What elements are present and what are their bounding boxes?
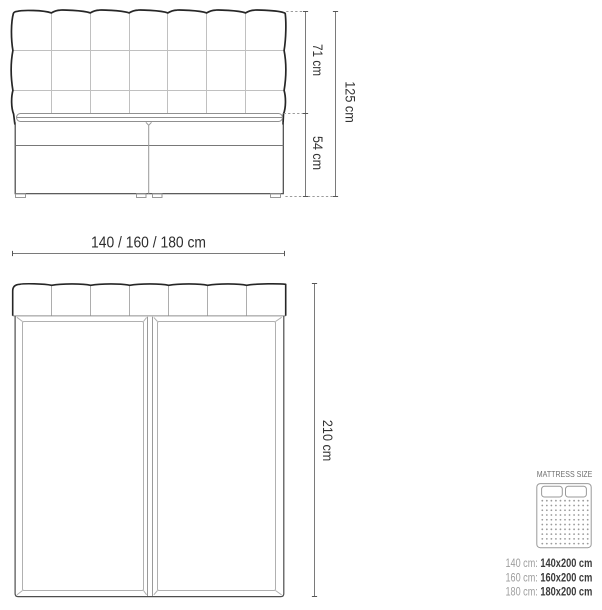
svg-text:71 cm: 71 cm bbox=[310, 44, 326, 76]
svg-text:180x200 cm: 180x200 cm bbox=[540, 587, 592, 599]
svg-text:140 cm:: 140 cm: bbox=[506, 558, 538, 570]
svg-text:140 / 160 / 180 cm: 140 / 160 / 180 cm bbox=[91, 234, 206, 251]
svg-text:210 cm: 210 cm bbox=[320, 420, 336, 461]
svg-text:160x200 cm: 160x200 cm bbox=[540, 572, 592, 584]
svg-text:54 cm: 54 cm bbox=[310, 136, 326, 170]
svg-text:180 cm:: 180 cm: bbox=[506, 587, 538, 599]
svg-text:160 cm:: 160 cm: bbox=[506, 572, 538, 584]
svg-text:MATTRESS SIZE: MATTRESS SIZE bbox=[537, 469, 593, 479]
svg-text:125 cm: 125 cm bbox=[343, 81, 359, 123]
svg-text:140x200 cm: 140x200 cm bbox=[540, 558, 592, 570]
